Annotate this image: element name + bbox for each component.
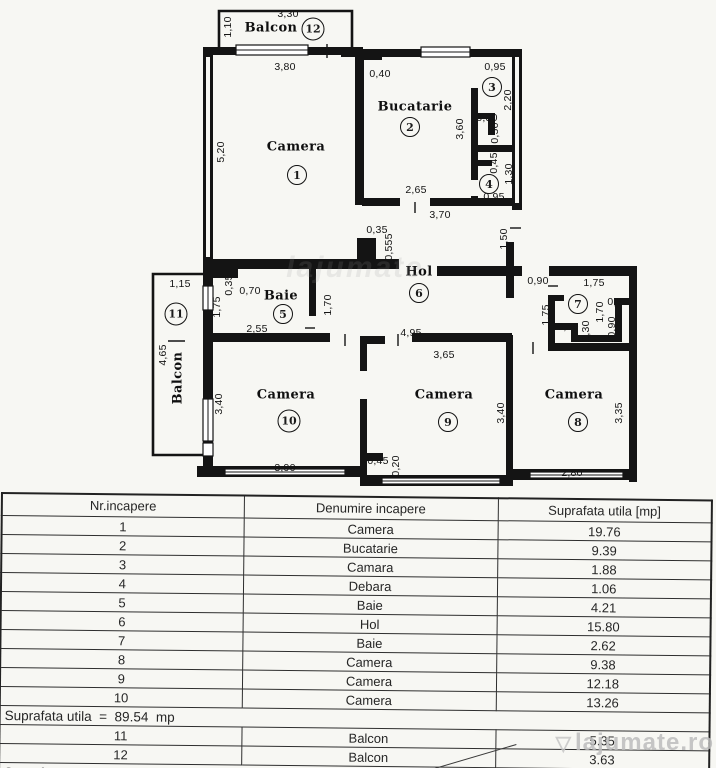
room-name-label: Camera [545,388,603,403]
dimension-label: 1,10 [222,16,234,37]
plan-labels: 3,301,10Balcon123,800,400,9532,20Bucatar… [0,0,716,492]
cell-name: Bucatarie [243,537,497,559]
area-table-section: Nr.incapere Denumire incapere Suprafata … [0,492,711,768]
room-number-badge: 6 [409,283,429,303]
dimension-label: 3,40 [495,402,507,423]
dimension-label: 0,45 [488,152,500,173]
dimension-label: 0,95 [483,191,504,203]
floor-plan: 3,301,10Balcon123,800,400,9532,20Bucatar… [0,0,716,492]
dimension-label: 1,75 [211,296,223,317]
room-number-badge: 8 [568,412,588,432]
cell-area: 15.80 [497,616,711,637]
cell-name: Debara [243,575,497,597]
dimension-label: 4,95 [400,327,421,339]
room-name-label: Camera [257,388,315,403]
dimension-label: 1,30 [503,163,515,184]
dimension-label: 0,50 [489,122,501,143]
dimension-label: 2,55 [246,323,267,335]
dimension-label: 0,50 [557,321,578,333]
cell-number: 11 [0,724,242,746]
dimension-label: 3,60 [454,118,466,139]
scanned-floor-plan-page: 3,301,10Balcon123,800,400,9532,20Bucatar… [0,0,716,768]
dimension-label: 0,45 [367,455,388,467]
dimension-label: 4,65 [157,344,169,365]
plan-watermark: lajumate [286,251,424,285]
room-number-badge: 11 [165,303,188,326]
room-number-badge: 7 [568,294,588,314]
rooms-table: Nr.incapere Denumire incapere Suprafata … [0,492,713,768]
dimension-label: 1,50 [498,228,510,249]
cell-number: 7 [0,630,242,652]
header-suprafata: Suprafata utila [mp] [498,498,712,523]
header-nr: Nr.incapere [2,493,244,518]
dimension-label: 0,40 [369,68,390,80]
room-name-label: Balcon [171,352,186,405]
dimension-label: 0,30 [607,296,628,308]
dimension-label: 3,40 [213,393,225,414]
room-number-badge: 10 [278,410,301,433]
rooms-table-main: 1Camera19.762Bucatarie9.393Camara1.884De… [0,516,712,713]
dimension-label: 0,30 [580,320,592,341]
cell-number: 8 [0,649,242,671]
dimension-label: 3,30 [277,8,298,20]
cell-number: 10 [0,686,242,708]
cell-area: 9.38 [496,654,710,675]
dimension-label: 0,95 [484,61,505,73]
room-name-label: Camera [267,140,325,155]
dimension-label: 3,35 [613,402,625,423]
cell-area: 9.39 [497,540,711,561]
cell-area: 1.06 [497,578,711,599]
site-watermark-text: lajumate.ro [575,729,714,757]
site-logo-icon: ▽ [556,731,572,756]
room-name-label: Bucatarie [378,100,453,115]
dimension-label: 1,75 [583,277,604,289]
cell-number: 4 [1,573,243,595]
site-watermark: ▽ lajumate.ro [556,729,714,757]
cell-area: 13.26 [496,692,710,713]
dimension-label: 2,20 [502,89,514,110]
dimension-label: 3,90 [274,462,295,474]
room-name-label: Camera [415,388,473,403]
dimension-label: 1,70 [322,294,334,315]
dimension-label: 2,65 [405,184,426,196]
room-number-badge: 9 [438,412,458,432]
dimension-label: 0,35 [223,274,235,295]
cell-area: 19.76 [498,521,712,542]
dimension-label: 3,65 [433,349,454,361]
dimension-label: 1,75 [540,304,552,325]
room-number-badge: 2 [400,117,420,137]
room-number-badge: 3 [482,77,502,97]
cell-number: 9 [0,668,242,690]
dimension-label: 3,80 [274,61,295,73]
room-number-badge: 5 [273,304,293,324]
cell-area: 12.18 [496,673,710,694]
dimension-label: 0,90 [606,316,618,337]
cell-area: 2.62 [496,635,710,656]
cell-number: 2 [1,535,243,557]
dimension-label: 1,70 [594,301,606,322]
dimension-label: 3,70 [429,209,450,221]
cell-number: 12 [0,743,241,765]
dimension-label: 0,70 [239,285,260,297]
cell-name: Camara [243,556,497,578]
cell-number: 1 [2,516,244,538]
dimension-label: 1,15 [169,278,190,290]
cell-number: 5 [1,592,243,614]
dimension-label: 0,90 [527,275,548,287]
room-number-badge: 12 [302,18,325,41]
header-denumire: Denumire incapere [244,496,498,521]
cell-number: 3 [1,554,243,576]
cell-area: 1.88 [497,559,711,580]
room-number-badge: 1 [287,165,307,185]
dimension-label: 2,80 [561,467,582,479]
room-name-label: Balcon [245,21,298,36]
cell-number: 6 [1,611,243,633]
dimension-label: 5,20 [215,141,227,162]
room-name-label: Baie [264,289,298,304]
cell-area: 4.21 [497,597,711,618]
dimension-label: 0,20 [390,455,402,476]
